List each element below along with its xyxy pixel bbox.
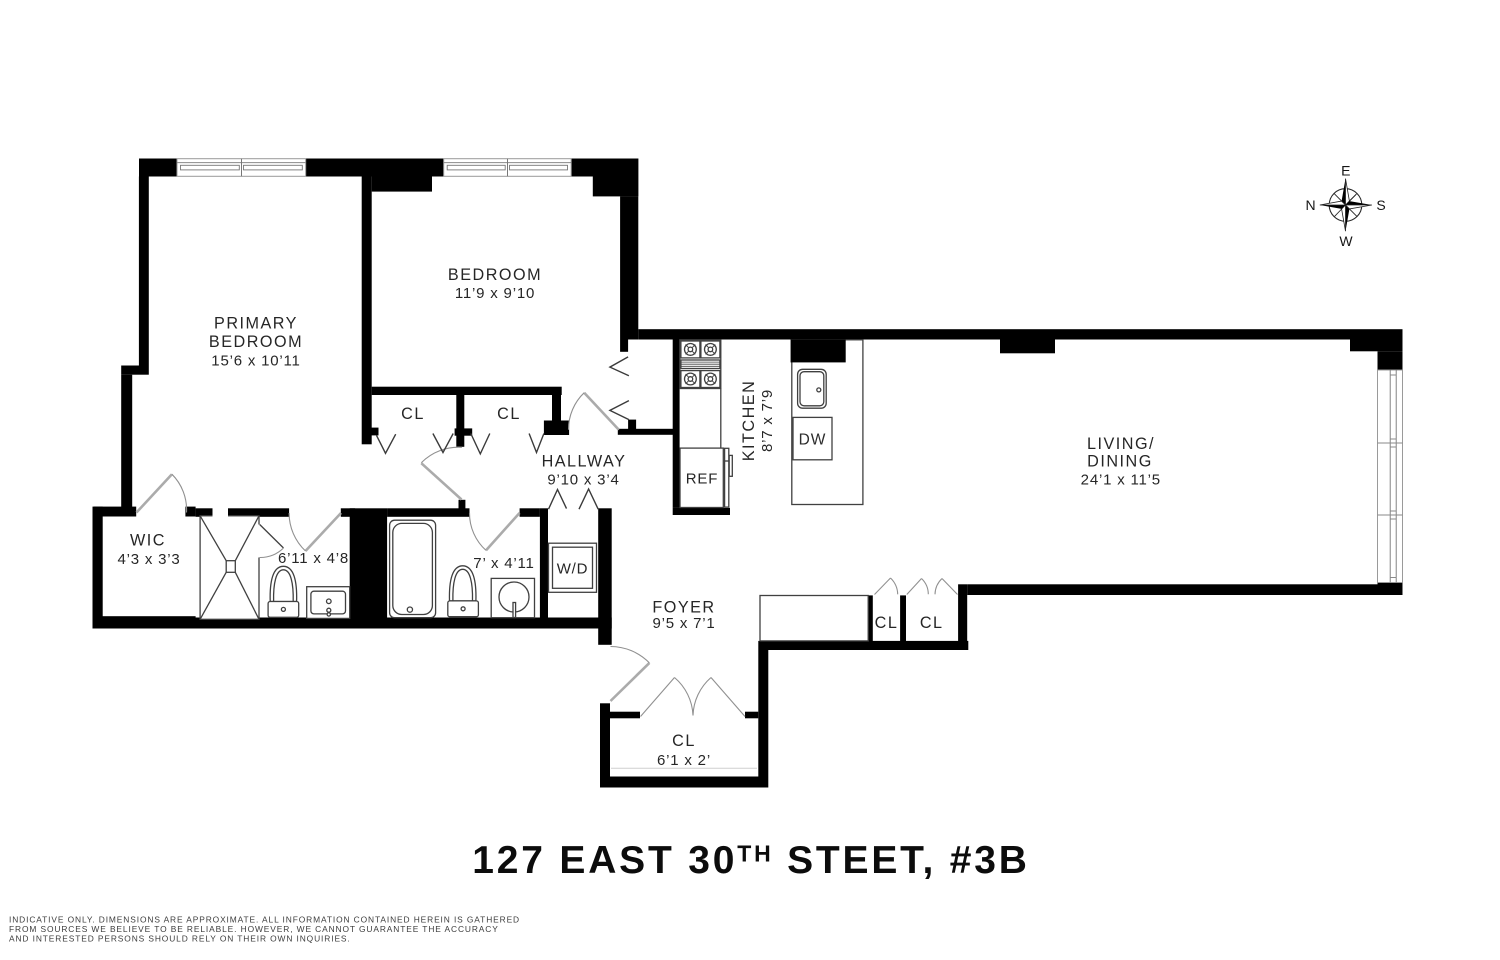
svg-text:BEDROOM: BEDROOM xyxy=(448,266,542,284)
svg-text:W: W xyxy=(1339,233,1353,249)
svg-text:11’9 x 9’10: 11’9 x 9’10 xyxy=(455,285,535,302)
svg-text:BEDROOM: BEDROOM xyxy=(209,333,303,351)
svg-text:FROM SOURCES WE BELIEVE TO BE: FROM SOURCES WE BELIEVE TO BE RELIABLE. … xyxy=(9,924,499,934)
svg-text:CL: CL xyxy=(920,614,944,632)
svg-text:9’10 x 3’4: 9’10 x 3’4 xyxy=(547,472,619,489)
svg-text:24’1 x 11’5: 24’1 x 11’5 xyxy=(1081,472,1161,489)
svg-text:CL: CL xyxy=(497,405,521,423)
svg-text:8’7 x 7’9: 8’7 x 7’9 xyxy=(759,389,776,452)
svg-text:KITCHEN: KITCHEN xyxy=(740,380,758,462)
svg-text:CL: CL xyxy=(875,614,899,632)
svg-text:LIVING/: LIVING/ xyxy=(1087,435,1155,453)
svg-text:PRIMARY: PRIMARY xyxy=(214,315,298,333)
svg-text:W/D: W/D xyxy=(557,561,589,578)
svg-text:DW: DW xyxy=(799,432,827,449)
svg-text:7’ x 4’11: 7’ x 4’11 xyxy=(473,555,534,572)
svg-text:WIC: WIC xyxy=(130,532,166,550)
svg-text:E: E xyxy=(1341,162,1350,178)
svg-text:HALLWAY: HALLWAY xyxy=(542,453,627,471)
svg-text:4’3 x 3’3: 4’3 x 3’3 xyxy=(117,551,180,568)
svg-text:S: S xyxy=(1376,197,1385,213)
svg-text:INDICATIVE ONLY. DIMENSIONS AR: INDICATIVE ONLY. DIMENSIONS ARE APPROXIM… xyxy=(9,915,520,925)
svg-text:AND INTERESTED PERSONS SHOULD: AND INTERESTED PERSONS SHOULD RELY ON TH… xyxy=(9,934,351,944)
svg-text:REF: REF xyxy=(686,471,718,488)
svg-text:15’6 x 10’11: 15’6 x 10’11 xyxy=(211,353,300,370)
svg-text:DINING: DINING xyxy=(1087,453,1153,471)
svg-text:CL: CL xyxy=(401,405,425,423)
svg-text:6’1 x 2’: 6’1 x 2’ xyxy=(657,752,711,769)
svg-text:9’5 x 7’1: 9’5 x 7’1 xyxy=(652,615,715,632)
svg-text:FOYER: FOYER xyxy=(652,599,715,617)
svg-text:N: N xyxy=(1305,197,1315,213)
svg-text:CL: CL xyxy=(672,732,696,750)
svg-text:6’11 x 4’8: 6’11 x 4’8 xyxy=(278,550,349,567)
svg-text:127 EAST 30TH STEET, #3B: 127 EAST 30TH STEET, #3B xyxy=(472,839,1029,882)
